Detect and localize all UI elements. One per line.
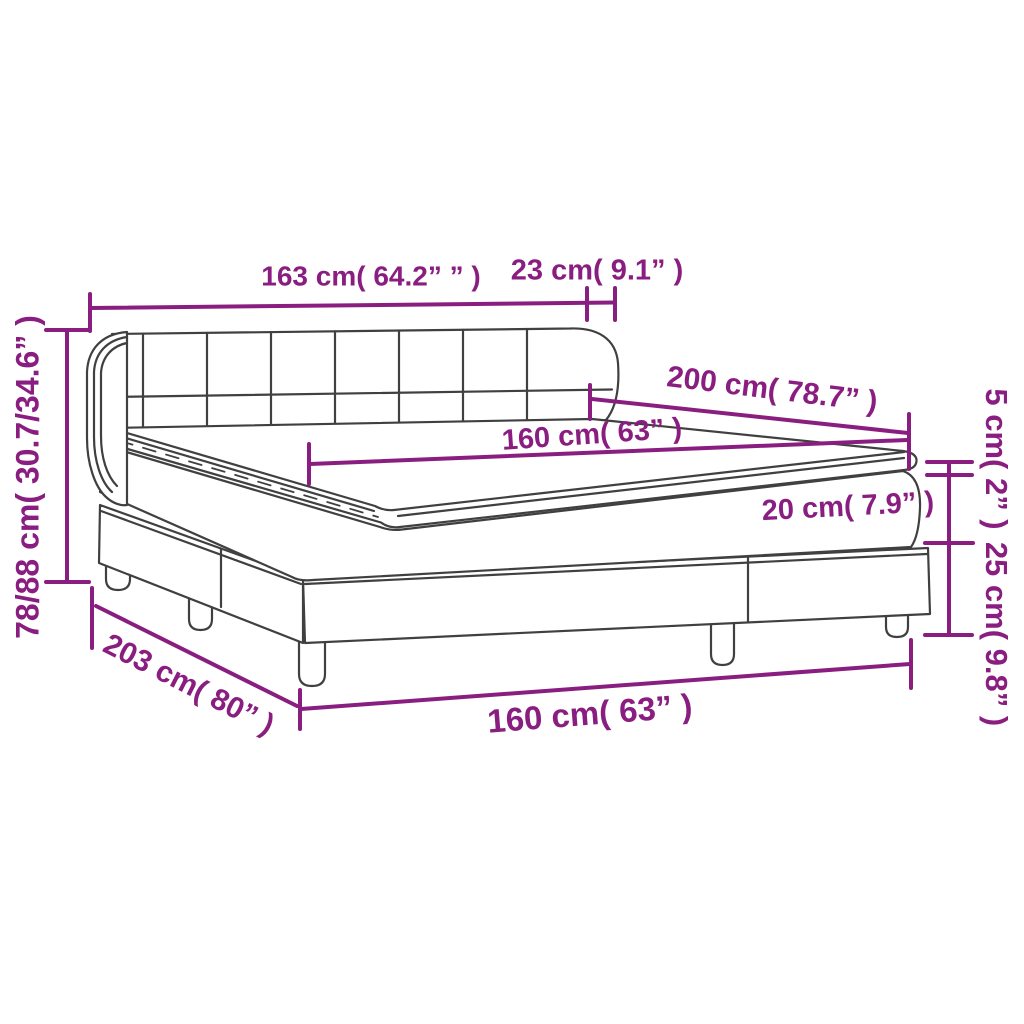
label-headboard-width: 163 cm( 64.2” ” ) (261, 260, 480, 291)
label-total-height: 78/88 cm( 30.7/34.6” ) (9, 315, 45, 639)
bed-leg (299, 640, 325, 686)
bed-leg (711, 622, 734, 665)
label-base-height: 25 cm( 9.8” ) (979, 542, 1014, 726)
label-headboard-depth: 23 cm( 9.1” ) (511, 255, 683, 287)
diagram-canvas: 163 cm( 64.2” ” ) 23 cm( 9.1” ) 78/88 cm… (0, 0, 1024, 1024)
label-topper-height: 5 cm( 2” ) (979, 388, 1014, 529)
bed-dimension-diagram: 163 cm( 64.2” ” ) 23 cm( 9.1” ) 78/88 cm… (0, 0, 1024, 1024)
dim-line-headboard-width (90, 303, 615, 309)
headboard-scroll-arm (87, 332, 127, 505)
headboard-panel (112, 328, 618, 431)
